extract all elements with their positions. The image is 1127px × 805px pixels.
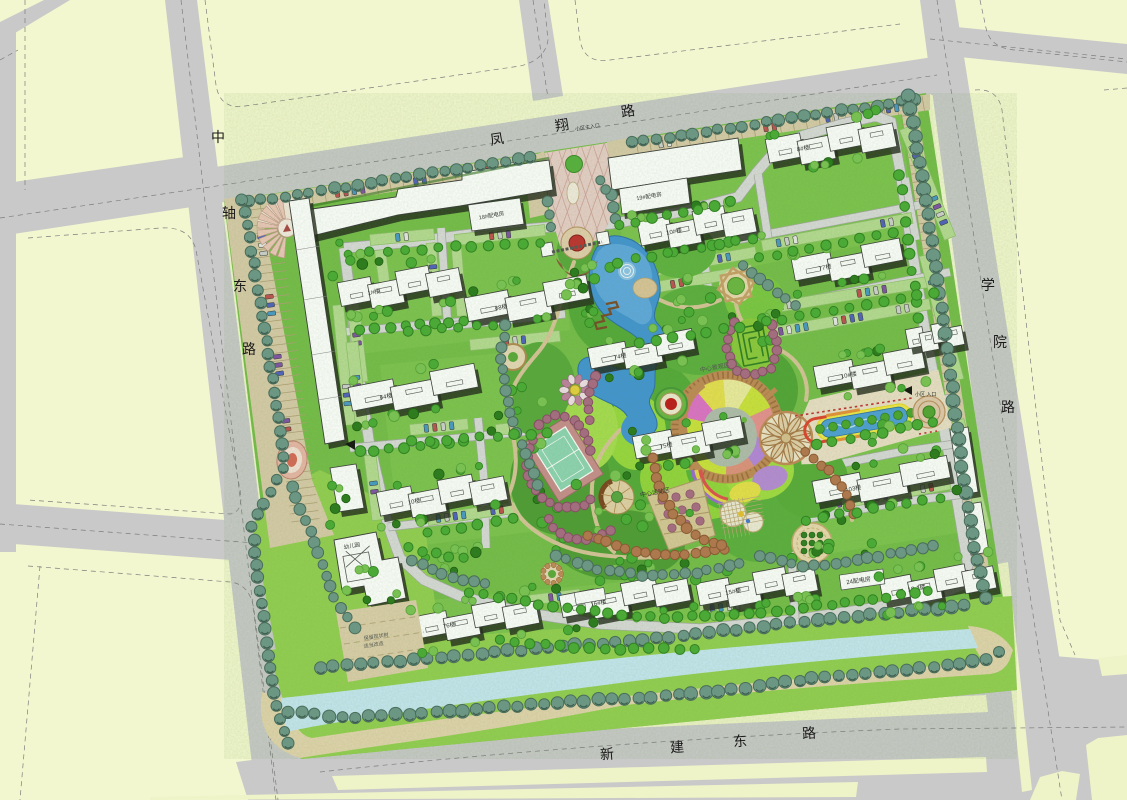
svg-text:路: 路 [620,102,636,120]
svg-text:新: 新 [600,746,615,763]
svg-text:院: 院 [993,334,1007,350]
svg-text:东: 东 [233,278,247,294]
svg-text:轴: 轴 [222,205,236,221]
svg-text:建: 建 [670,739,685,756]
svg-text:凤: 凤 [489,130,505,148]
svg-text:路: 路 [1001,399,1015,415]
svg-text:翔: 翔 [554,116,570,134]
svg-text:路: 路 [242,341,256,357]
svg-text:中: 中 [211,129,225,145]
svg-text:路: 路 [802,725,817,742]
svg-text:东: 东 [733,733,748,750]
svg-text:学: 学 [981,277,995,293]
